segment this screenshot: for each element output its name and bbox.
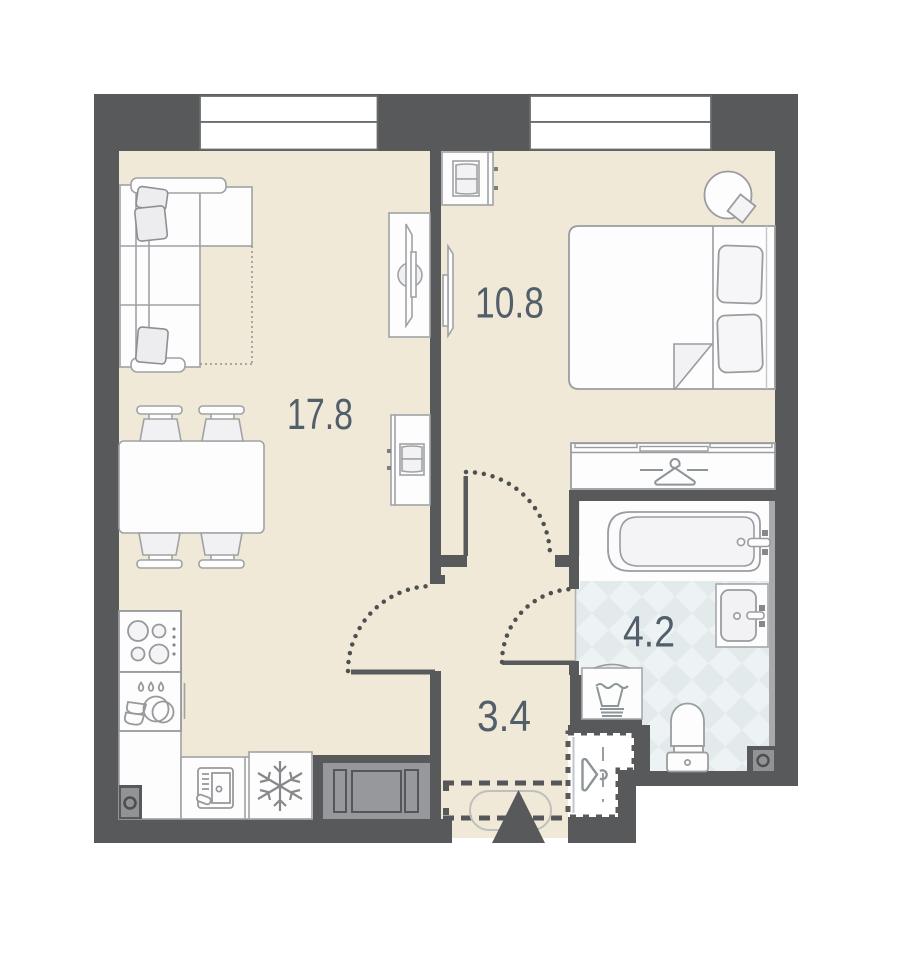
svg-text:17.8: 17.8 xyxy=(287,390,353,439)
svg-text:4.2: 4.2 xyxy=(623,608,675,657)
svg-text:10.8: 10.8 xyxy=(475,279,544,328)
svg-text:3.4: 3.4 xyxy=(477,692,531,741)
